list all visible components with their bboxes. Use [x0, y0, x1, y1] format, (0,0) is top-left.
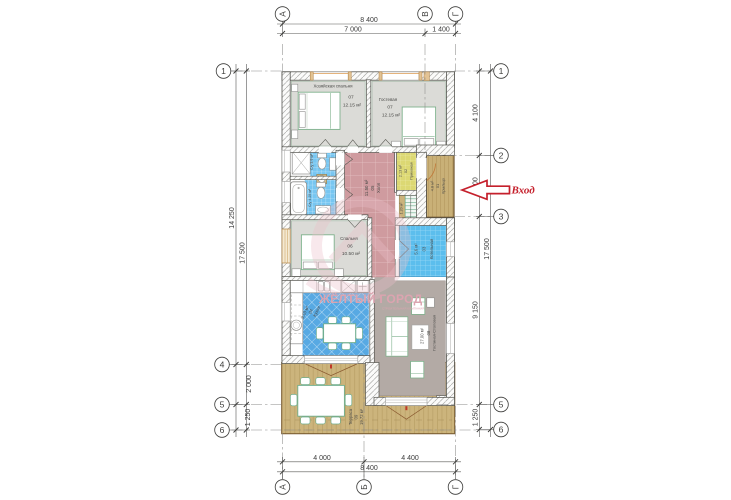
svg-text:6: 6: [220, 425, 225, 435]
svg-text:08: 08: [426, 330, 431, 335]
svg-text:1 250: 1 250: [245, 409, 252, 427]
svg-text:2 000: 2 000: [246, 375, 253, 393]
svg-text:А: А: [279, 484, 288, 490]
svg-text:Гостевая: Гостевая: [379, 97, 398, 102]
svg-text:А: А: [279, 11, 288, 17]
svg-text:12.15 м²: 12.15 м²: [382, 112, 401, 118]
svg-text:1.20 м²: 1.20 м²: [400, 202, 404, 214]
svg-text:10.50 м²: 10.50 м²: [342, 251, 361, 257]
svg-text:5: 5: [220, 400, 225, 410]
svg-text:03: 03: [422, 246, 427, 251]
svg-text:5.6 м²: 5.6 м²: [414, 243, 419, 255]
svg-text:2: 2: [499, 151, 504, 161]
svg-text:07: 07: [387, 105, 393, 111]
svg-text:Спальня: Спальня: [340, 236, 358, 241]
svg-text:1 400: 1 400: [432, 27, 450, 34]
svg-text:4 000: 4 000: [313, 455, 331, 462]
svg-text:1 250: 1 250: [473, 409, 480, 427]
svg-text:17 500: 17 500: [484, 238, 491, 260]
svg-text:Вход: Вход: [511, 185, 536, 197]
svg-text:27.00 м²: 27.00 м²: [420, 327, 425, 344]
svg-text:СТРОИТЕЛЬНАЯ КОМПАНИЯ: СТРОИТЕЛЬНАЯ КОМПАНИЯ: [382, 307, 424, 311]
svg-text:1: 1: [221, 66, 226, 76]
svg-text:8 400: 8 400: [360, 465, 378, 472]
svg-text:8 400: 8 400: [360, 17, 378, 24]
svg-text:Терраса: Терраса: [348, 408, 353, 425]
svg-text:1: 1: [499, 66, 504, 76]
svg-text:Прихожая: Прихожая: [410, 162, 414, 180]
svg-text:4 400: 4 400: [401, 455, 419, 462]
svg-text:11.50 м²: 11.50 м²: [364, 179, 369, 196]
svg-text:4 100: 4 100: [473, 104, 480, 122]
svg-text:12.15 м²: 12.15 м²: [343, 102, 362, 108]
svg-text:С/у 4.25 м²: С/у 4.25 м²: [308, 188, 312, 207]
svg-text:Крыльцо: Крыльцо: [441, 178, 446, 194]
svg-text:2.13 м²: 2.13 м²: [399, 164, 403, 177]
svg-text:02: 02: [404, 169, 408, 173]
svg-text:Б: Б: [360, 484, 369, 489]
svg-text:3: 3: [499, 212, 504, 222]
svg-text:5: 5: [499, 400, 504, 410]
svg-text:14 250: 14 250: [229, 207, 236, 229]
svg-text:4: 4: [220, 360, 225, 370]
svg-text:Г: Г: [452, 484, 461, 489]
svg-text:01: 01: [435, 184, 440, 188]
svg-text:Хозяйская спальня: Хозяйская спальня: [313, 84, 353, 89]
svg-text:06: 06: [347, 244, 353, 250]
svg-text:Холл: Холл: [376, 182, 381, 193]
svg-text:Г: Г: [452, 11, 461, 16]
svg-text:17 500: 17 500: [239, 242, 246, 264]
svg-text:09: 09: [354, 414, 359, 419]
svg-text:Гостиная-Столовая: Гостиная-Столовая: [432, 315, 437, 351]
svg-text:Котельная: Котельная: [429, 239, 434, 259]
svg-text:В: В: [421, 11, 430, 17]
svg-text:07: 07: [348, 95, 354, 101]
svg-text:ЖЁЛТЫЙ ГОРОД: ЖЁЛТЫЙ ГОРОД: [318, 291, 423, 306]
svg-text:7 000: 7 000: [344, 27, 362, 34]
svg-text:6: 6: [499, 425, 504, 435]
svg-text:С/у 3.9 м²: С/у 3.9 м²: [310, 153, 314, 170]
svg-text:4.8 м²: 4.8 м²: [430, 180, 435, 191]
svg-text:19.72 м²: 19.72 м²: [359, 408, 364, 425]
svg-text:05: 05: [370, 185, 375, 190]
svg-text:9 150: 9 150: [473, 301, 480, 319]
